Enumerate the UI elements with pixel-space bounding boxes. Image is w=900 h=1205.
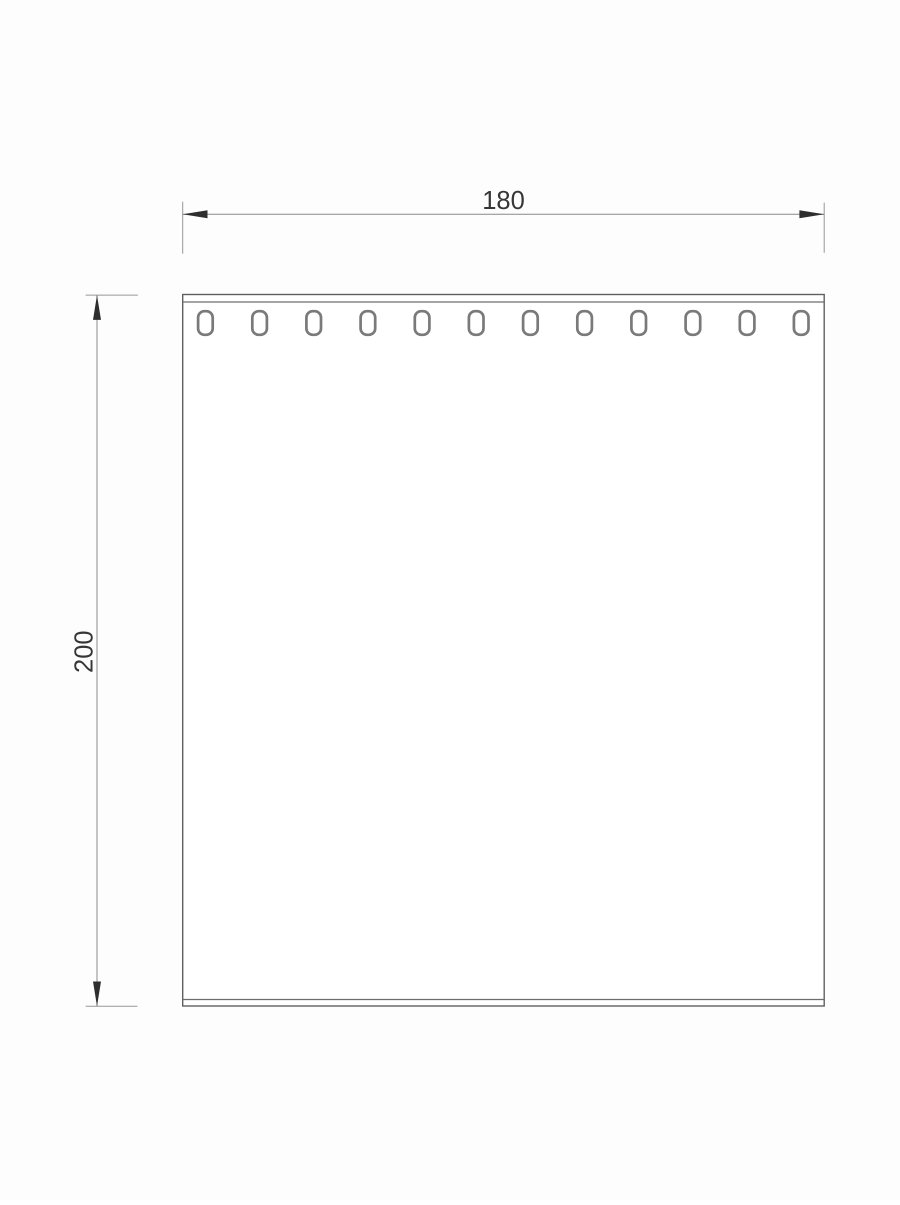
svg-text:180: 180 — [482, 187, 525, 215]
svg-text:200: 200 — [70, 630, 98, 673]
